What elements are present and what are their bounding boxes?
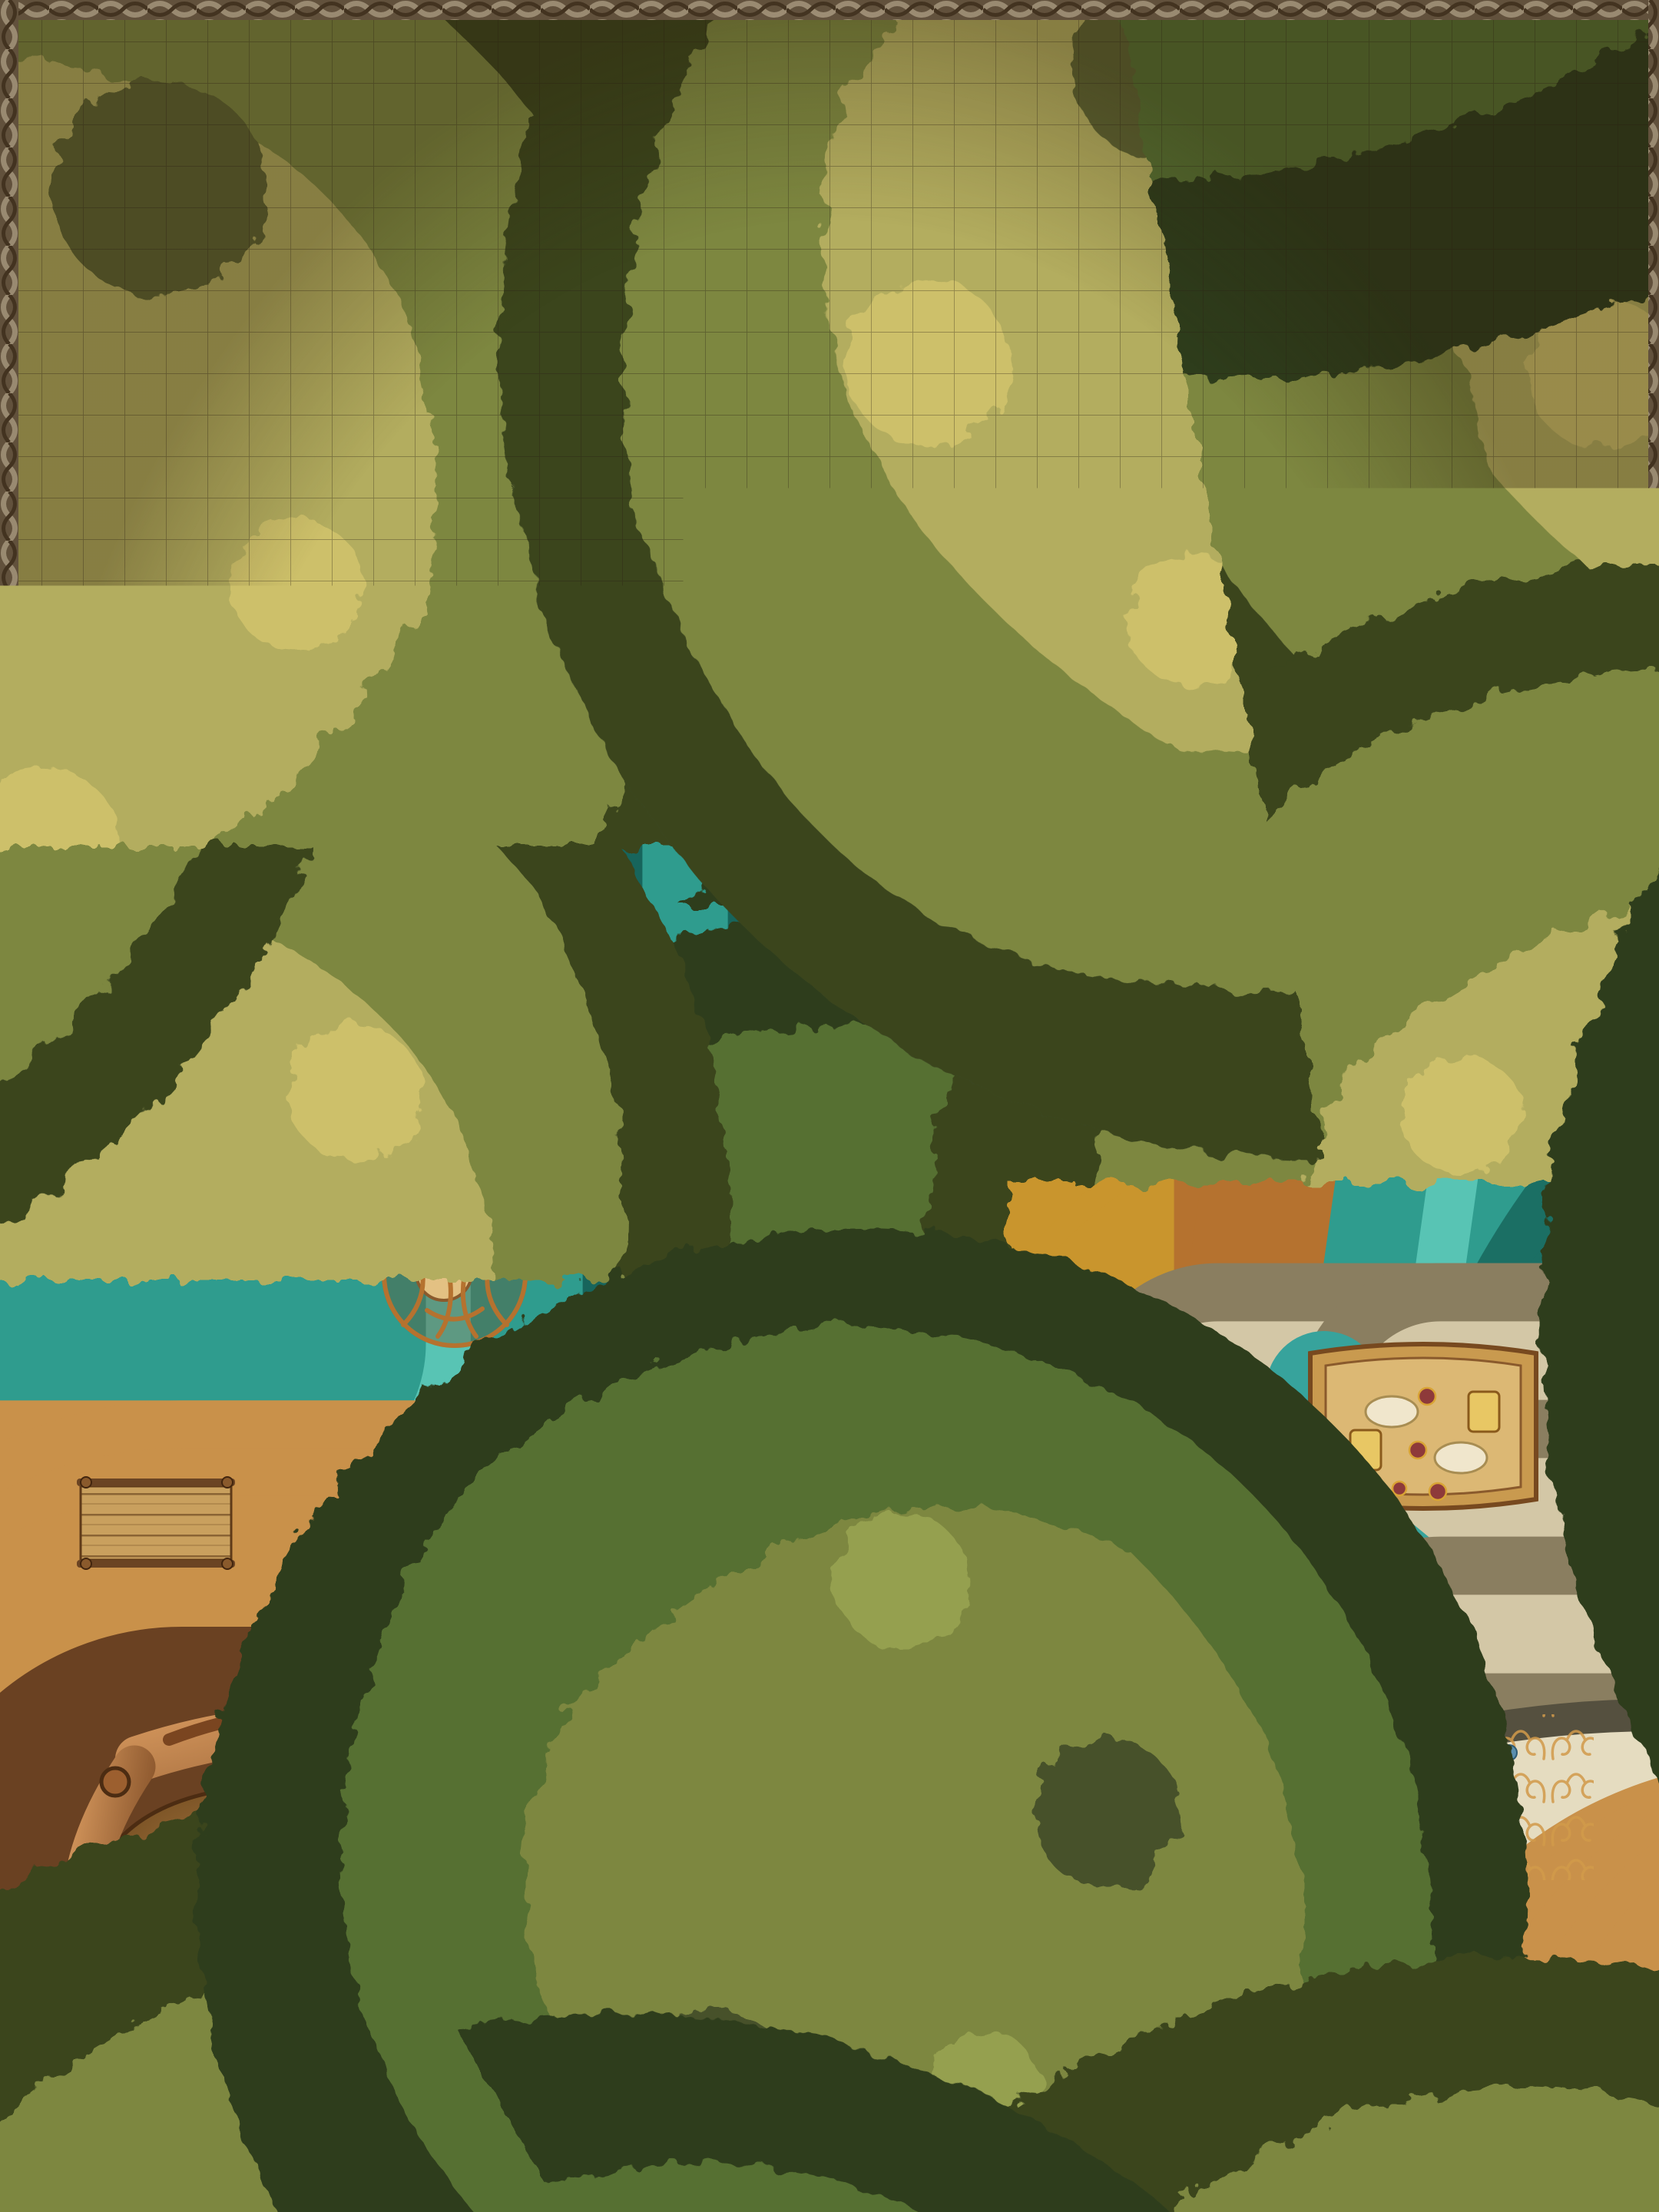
battle-map-page — [0, 0, 1659, 2212]
vignette — [0, 0, 1659, 2212]
battle-map-canvas[interactable] — [0, 0, 1659, 2212]
